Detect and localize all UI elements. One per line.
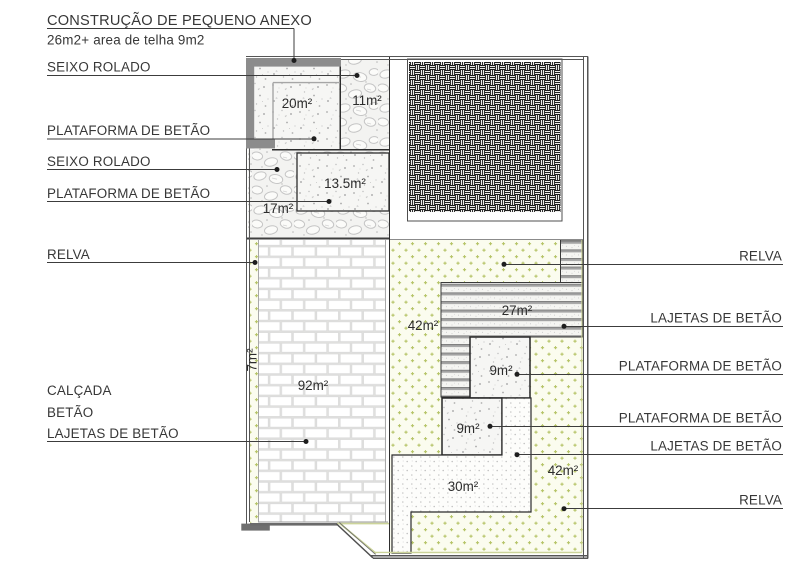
label-seixo-rolado-2: SEIXO ROLADO [47, 154, 151, 169]
region-telha-roof [408, 59, 563, 221]
site-plan-drawing: CONSTRUÇÃO DE PEQUENO ANEXO 26m2+ area d… [0, 0, 811, 575]
label-lajetas-right-2: LAJETAS DE BETÃO [650, 439, 782, 454]
region-relva-strip-7 [250, 240, 258, 523]
boundary-brick-bottom [250, 523, 337, 526]
label-plataforma-2: PLATAFORMA DE BETÃO [47, 186, 210, 201]
plan-regions [248, 59, 583, 554]
title-label: CONSTRUÇÃO DE PEQUENO ANEXO [47, 12, 312, 29]
anexo-wall-stub [246, 139, 275, 148]
area-42-lower: 42m² [548, 463, 579, 478]
label-plataforma-right-2: PLATAFORMA DE BETÃO [619, 411, 782, 426]
anexo-wall-left [246, 58, 254, 149]
area-13-5: 13.5m² [324, 176, 366, 191]
label-calcada: CALÇADA [47, 383, 112, 398]
area-92: 92m² [298, 378, 329, 393]
label-lajetas-left: LAJETAS DE BETÃO [47, 426, 179, 441]
area-27: 27m² [502, 303, 533, 318]
area-9-lower: 9m² [456, 421, 480, 436]
label-relva-right-1: RELVA [739, 249, 782, 264]
area-20: 20m² [282, 96, 313, 111]
area-7: 7m² [245, 348, 260, 372]
label-seixo-rolado-1: SEIXO ROLADO [47, 60, 151, 75]
label-relva-left: RELVA [47, 247, 90, 262]
area-9-upper: 9m² [489, 363, 513, 378]
area-30: 30m² [448, 479, 479, 494]
label-plataforma-right-1: PLATAFORMA DE BETÃO [619, 359, 782, 374]
label-lajetas-right-1: LAJETAS DE BETÃO [650, 311, 782, 326]
subtitle-label: 26m2+ area de telha 9m2 [47, 33, 205, 48]
area-11: 11m² [352, 93, 382, 108]
area-42-upper: 42m² [408, 318, 439, 333]
label-plataforma-1: PLATAFORMA DE BETÃO [47, 123, 210, 138]
label-relva-right-2: RELVA [739, 493, 782, 508]
area-17: 17m² [263, 201, 294, 216]
label-betao: BETÃO [47, 405, 93, 420]
